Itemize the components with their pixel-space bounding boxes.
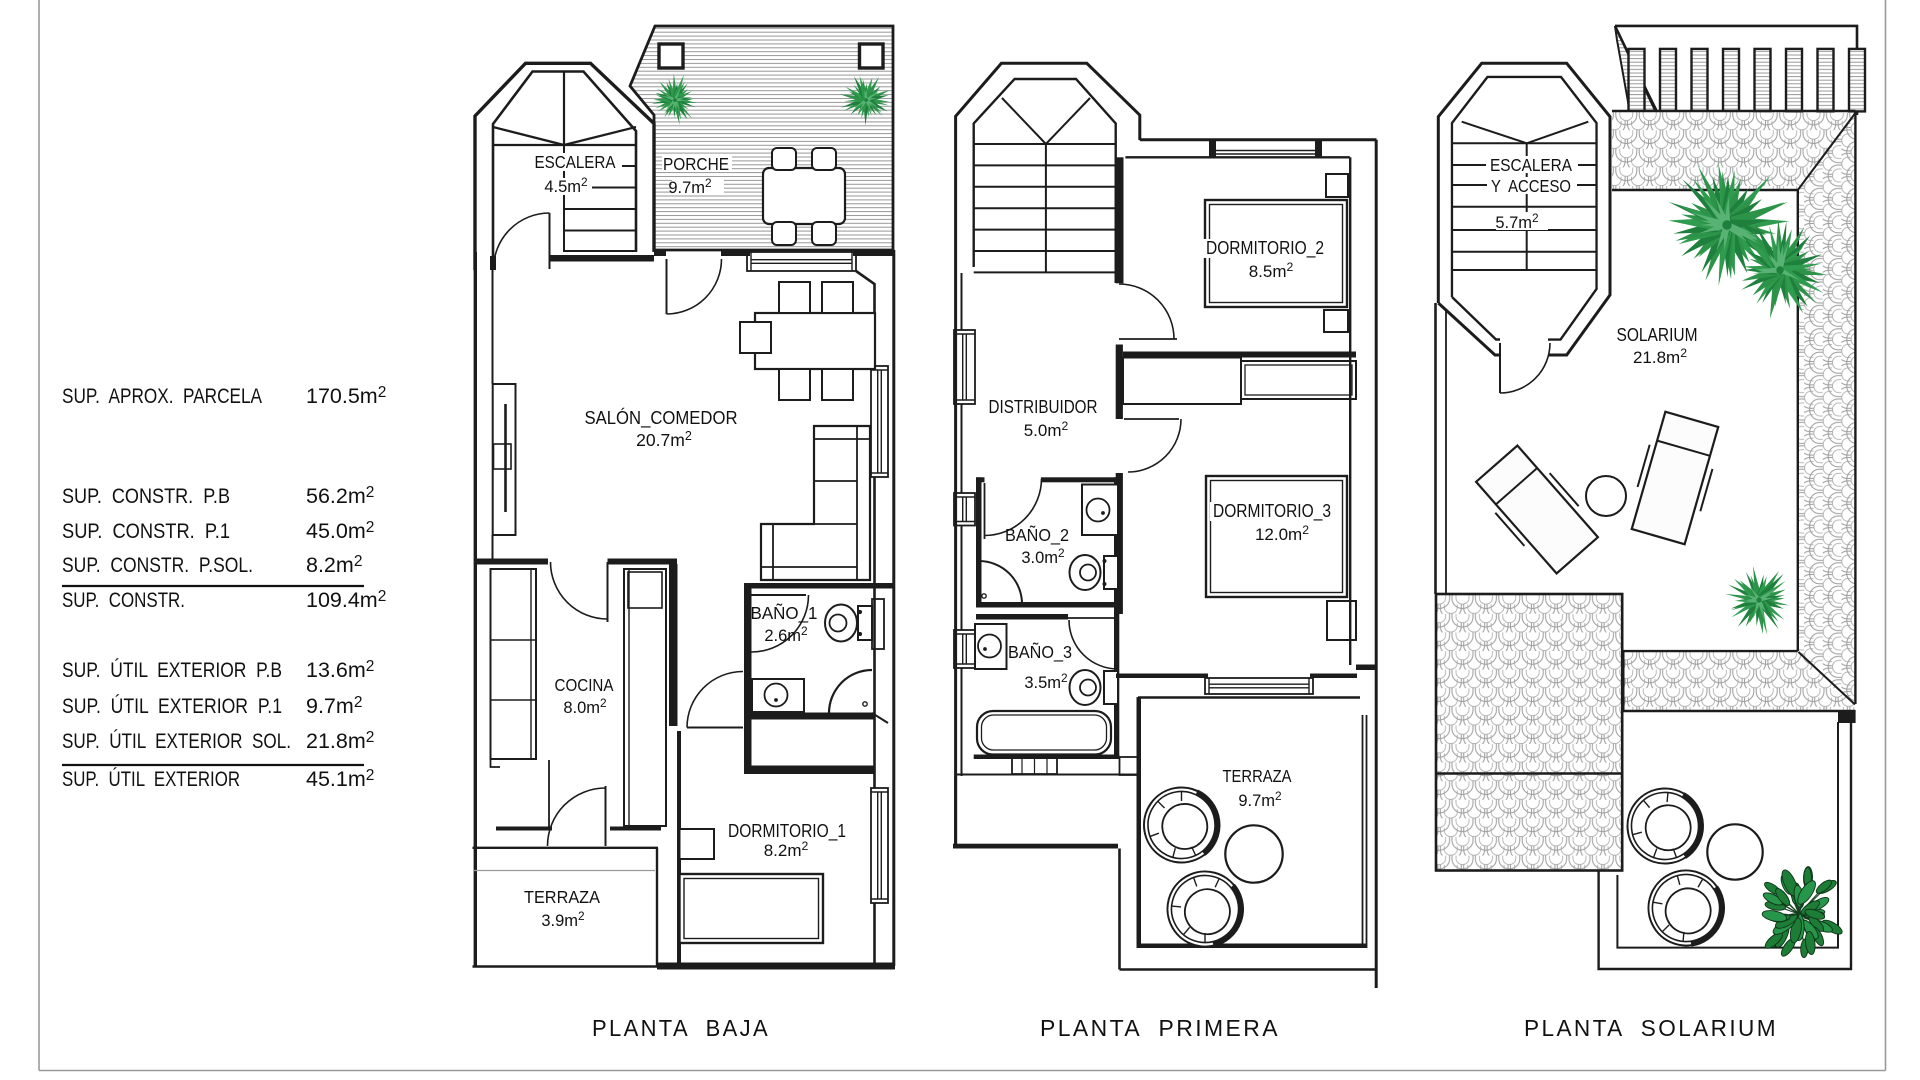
- svg-text:PLANTA BAJA: PLANTA BAJA: [592, 1015, 770, 1041]
- svg-text:SUP. CONSTR. P.SOL.: SUP. CONSTR. P.SOL.: [62, 553, 253, 577]
- svg-text:SUP. ÚTIL EXTERIOR P.1: SUP. ÚTIL EXTERIOR P.1: [62, 693, 282, 718]
- svg-text:DISTRIBUIDOR: DISTRIBUIDOR: [989, 397, 1098, 417]
- svg-text:ESCALERA: ESCALERA: [1490, 155, 1572, 175]
- svg-text:BAÑO_2: BAÑO_2: [1005, 524, 1069, 546]
- svg-text:ESCALERA: ESCALERA: [535, 152, 616, 172]
- svg-text:PLANTA SOLARIUM: PLANTA SOLARIUM: [1524, 1015, 1778, 1041]
- svg-text:56.2m2: 56.2m2: [306, 484, 374, 508]
- svg-text:SUP. CONSTR.: SUP. CONSTR.: [62, 588, 185, 612]
- svg-text:45.1m2: 45.1m2: [306, 767, 374, 791]
- svg-text:TERRAZA: TERRAZA: [524, 887, 600, 907]
- svg-text:21.8m2: 21.8m2: [1633, 346, 1687, 367]
- svg-text:DORMITORIO_2: DORMITORIO_2: [1206, 238, 1324, 259]
- svg-text:Y ACCESO: Y ACCESO: [1491, 176, 1571, 196]
- svg-text:170.5m2: 170.5m2: [306, 384, 386, 408]
- svg-text:109.4m2: 109.4m2: [306, 588, 386, 612]
- svg-text:PLANTA PRIMERA: PLANTA PRIMERA: [1040, 1015, 1280, 1041]
- svg-text:BAÑO_1: BAÑO_1: [751, 602, 818, 624]
- svg-text:SUP. ÚTIL EXTERIOR: SUP. ÚTIL EXTERIOR: [62, 766, 240, 791]
- svg-text:13.6m2: 13.6m2: [306, 658, 374, 682]
- svg-text:SALÓN_COMEDOR: SALÓN_COMEDOR: [585, 407, 738, 429]
- svg-text:BAÑO_3: BAÑO_3: [1008, 641, 1072, 663]
- svg-text:SUP. APROX. PARCELA: SUP. APROX. PARCELA: [62, 384, 263, 408]
- svg-text:20.7m2: 20.7m2: [636, 429, 692, 450]
- svg-text:TERRAZA: TERRAZA: [1223, 766, 1292, 786]
- svg-text:DORMITORIO_3: DORMITORIO_3: [1213, 501, 1331, 522]
- svg-text:21.8m2: 21.8m2: [306, 729, 374, 753]
- svg-text:SUP. ÚTIL EXTERIOR P.B: SUP. ÚTIL EXTERIOR P.B: [62, 657, 282, 682]
- svg-text:DORMITORIO_1: DORMITORIO_1: [728, 821, 846, 842]
- svg-text:SUP. ÚTIL EXTERIOR SOL.: SUP. ÚTIL EXTERIOR SOL.: [62, 728, 291, 753]
- svg-text:PORCHE: PORCHE: [663, 154, 729, 174]
- svg-text:45.0m2: 45.0m2: [306, 519, 374, 543]
- svg-text:12.0m2: 12.0m2: [1255, 523, 1309, 544]
- svg-text:SUP. CONSTR. P.1: SUP. CONSTR. P.1: [62, 519, 230, 543]
- svg-text:COCINA: COCINA: [555, 675, 614, 695]
- svg-text:SUP. CONSTR. P.B: SUP. CONSTR. P.B: [62, 484, 230, 508]
- svg-text:SOLARIUM: SOLARIUM: [1617, 325, 1698, 345]
